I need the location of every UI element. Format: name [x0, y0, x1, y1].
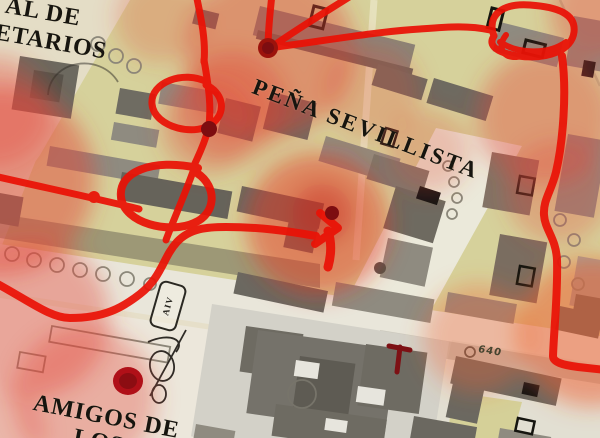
marker-arrow-drip — [328, 231, 331, 267]
marker-dot-left — [88, 191, 100, 203]
marker-route-right-edge — [544, 56, 600, 370]
dark-dot-mid-left — [201, 121, 217, 137]
dark-dot-top-center — [262, 42, 274, 54]
marker-loop-top-right-inner — [500, 42, 566, 51]
marker-loop-left — [121, 165, 212, 228]
marker-s-curve-route — [0, 227, 316, 318]
red-marker-overlay — [0, 0, 600, 438]
filled-dot-bottom-left-core — [119, 373, 137, 389]
t-mark-stem — [397, 347, 400, 372]
dark-dot-center — [325, 206, 339, 220]
marker-vertical-line-top — [196, 0, 204, 62]
annotated-site-plan-photo: AL DE IETARIOS PEÑA SEVILLISTA AMIGOS DE… — [0, 0, 600, 438]
